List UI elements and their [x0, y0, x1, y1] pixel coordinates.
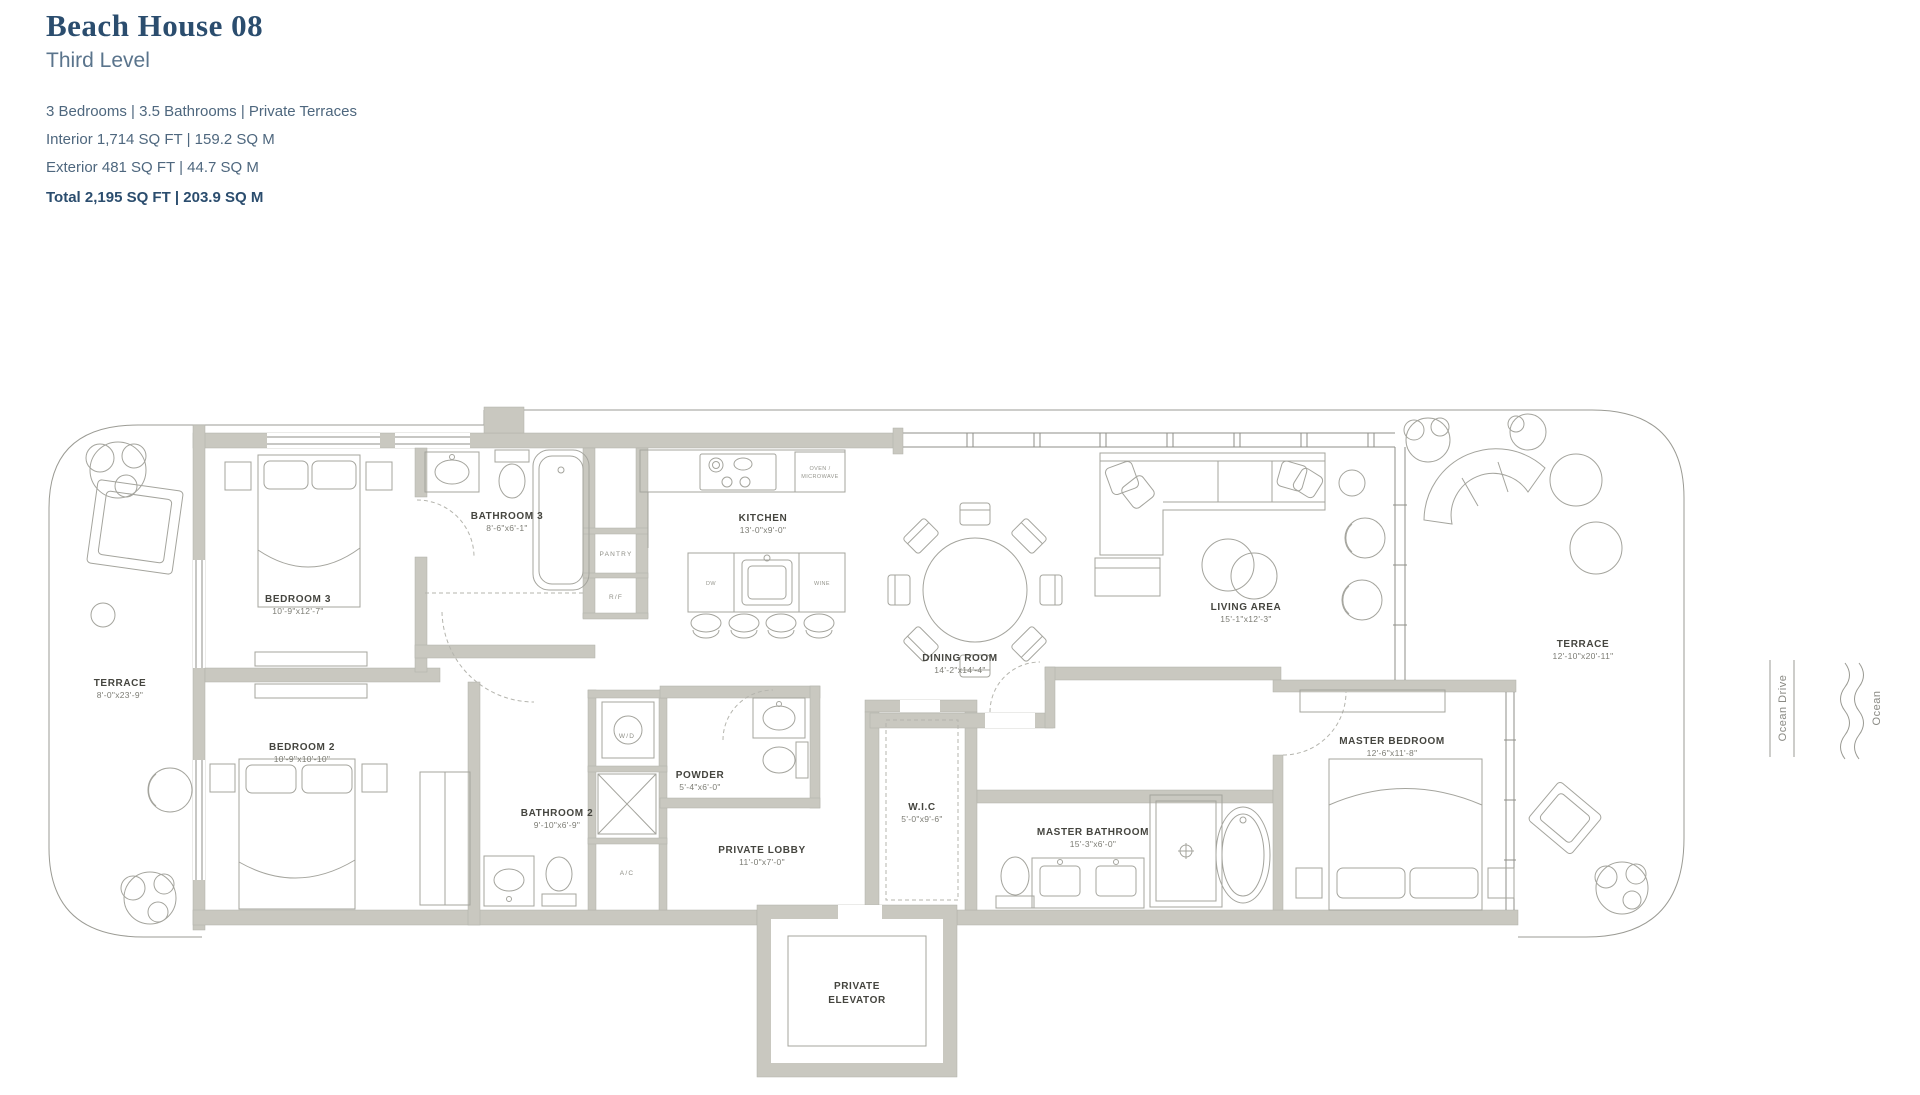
room-dims-bathroom3: 8'-6"x6'-1" [486, 523, 527, 533]
coffee-table-glyph [1202, 539, 1254, 591]
room-dims-kitchen: 13'-0"x9'-0" [740, 525, 786, 535]
room-label-kitchen: KITCHEN [739, 513, 788, 524]
lounge-chair-glyph [1342, 518, 1385, 620]
label-wine: WINE [814, 581, 830, 587]
bed-glyph [239, 759, 355, 909]
room-label-powder: POWDER [676, 770, 725, 781]
room-label-elevator-2: ELEVATOR [828, 995, 886, 1006]
side-table-glyph [91, 603, 115, 627]
plant-icon [86, 442, 146, 498]
nightstand-glyph [366, 462, 392, 490]
room-label-dining: DINING ROOM [922, 653, 998, 664]
powder-fixtures [753, 698, 808, 778]
room-dims-terrace-right: 12'-10"x20'-11" [1553, 651, 1614, 661]
wave-icon [1855, 663, 1864, 759]
bathroom2-fixtures [484, 856, 576, 906]
room-label-elevator-1: PRIVATE [834, 981, 880, 992]
nightstand-glyph [1488, 868, 1514, 898]
toilet-glyph [796, 742, 808, 778]
living-furniture [1095, 453, 1385, 620]
master-bathroom-fixtures [996, 795, 1270, 908]
room-label-terrace-left: TERRACE [94, 678, 147, 689]
room-label-terrace-right: TERRACE [1557, 639, 1610, 650]
curved-sofa-glyph [1424, 449, 1545, 524]
washer-glyph [602, 702, 654, 758]
terrace-table-glyph [1550, 454, 1602, 506]
room-dims-terrace-left: 8'-0"x23'-9" [97, 690, 143, 700]
ottoman-glyph [1095, 558, 1160, 596]
room-dims-living: 15'-1"x12'-3" [1220, 614, 1271, 624]
room-dims-wic: 5'-0"x9'-6" [901, 814, 942, 824]
bedroom3-furniture [225, 455, 392, 698]
dresser-glyph [255, 652, 367, 666]
room-label-wic: W.I.C [908, 802, 935, 813]
room-label-lobby: PRIVATE LOBBY [718, 845, 805, 856]
side-table-glyph [1339, 470, 1365, 496]
vanity-glyph [425, 452, 479, 492]
small-labels: PANTRY R/F W/D A/C DW WINE OVEN / MICROW… [600, 466, 839, 877]
nightstand-glyph [362, 764, 387, 792]
label-rf: R/F [609, 594, 623, 601]
room-dims-bedroom2: 10'-9"x10'-10" [274, 754, 330, 764]
dresser-glyph [255, 684, 367, 698]
toilet-glyph [996, 896, 1034, 908]
label-pantry: PANTRY [600, 551, 633, 558]
lounge-chair-glyph [148, 768, 192, 812]
label-oven-2: MICROWAVE [801, 474, 839, 480]
bathtub-glyph [1216, 807, 1270, 903]
dining-table-glyph [923, 538, 1027, 642]
room-label-bedroom3: BEDROOM 3 [265, 594, 331, 605]
window-mullions [967, 433, 1374, 447]
label-oven-1: OVEN / [809, 466, 830, 472]
vanity-glyph [484, 856, 534, 906]
bedroom2-furniture [210, 759, 470, 909]
plant-icon [1404, 418, 1450, 462]
label-ac: A/C [620, 870, 634, 877]
plant-icon [121, 872, 176, 924]
nightstand-glyph [225, 462, 251, 490]
water-label: Ocean [1871, 691, 1883, 726]
vanity-glyph [753, 698, 805, 738]
room-dims-master-bath: 15'-3"x6'-0" [1070, 839, 1116, 849]
room-dims-dining: 14'-2"x14'-4" [934, 665, 985, 675]
wave-icon [1841, 663, 1850, 759]
room-label-bathroom2: BATHROOM 2 [521, 808, 593, 819]
floor-plan: Ocean Drive Ocean TERRACE 8'-0"x23'-9" B… [0, 0, 1920, 1095]
room-label-master-bed: MASTER BEDROOM [1339, 736, 1445, 747]
room-label-bathroom3: BATHROOM 3 [471, 511, 543, 522]
room-label-master-bath: MASTER BATHROOM [1037, 827, 1149, 838]
ocean-context: Ocean Drive Ocean [1770, 660, 1883, 759]
plant-icon [1508, 414, 1546, 450]
oven-glyph [795, 452, 845, 492]
room-dims-bedroom3: 10'-9"x12'-7" [272, 606, 323, 616]
dining-furniture [888, 503, 1062, 677]
room-dims-bathroom2: 9'-10"x6'-9" [534, 820, 580, 830]
bed-glyph [258, 455, 360, 607]
room-dims-powder: 5'-4"x6'-0" [679, 782, 720, 792]
stool-glyphs [691, 614, 834, 638]
nightstand-glyph [1296, 868, 1322, 898]
room-label-bedroom2: BEDROOM 2 [269, 742, 335, 753]
toilet-glyph [542, 894, 576, 906]
street-label: Ocean Drive [1777, 675, 1789, 742]
lounge-chair-glyph [87, 479, 184, 574]
terrace-table-glyph [1570, 522, 1622, 574]
lounge-chair-glyph [1527, 781, 1602, 855]
label-wd: W/D [619, 733, 635, 740]
plant-icon [1595, 862, 1648, 914]
floorplan-page: Beach House 08 Third Level 3 Bedrooms | … [0, 0, 1920, 1095]
dresser-glyph [1300, 690, 1445, 712]
room-label-living: LIVING AREA [1211, 602, 1282, 613]
room-dims-master-bed: 12'-6"x11'-8" [1367, 748, 1418, 758]
master-bedroom-furniture [1296, 690, 1514, 910]
nightstand-glyph [210, 764, 235, 792]
toilet-glyph [495, 450, 529, 462]
label-dw: DW [706, 581, 716, 587]
room-dims-lobby: 11'-0"x7'-0" [739, 857, 785, 867]
